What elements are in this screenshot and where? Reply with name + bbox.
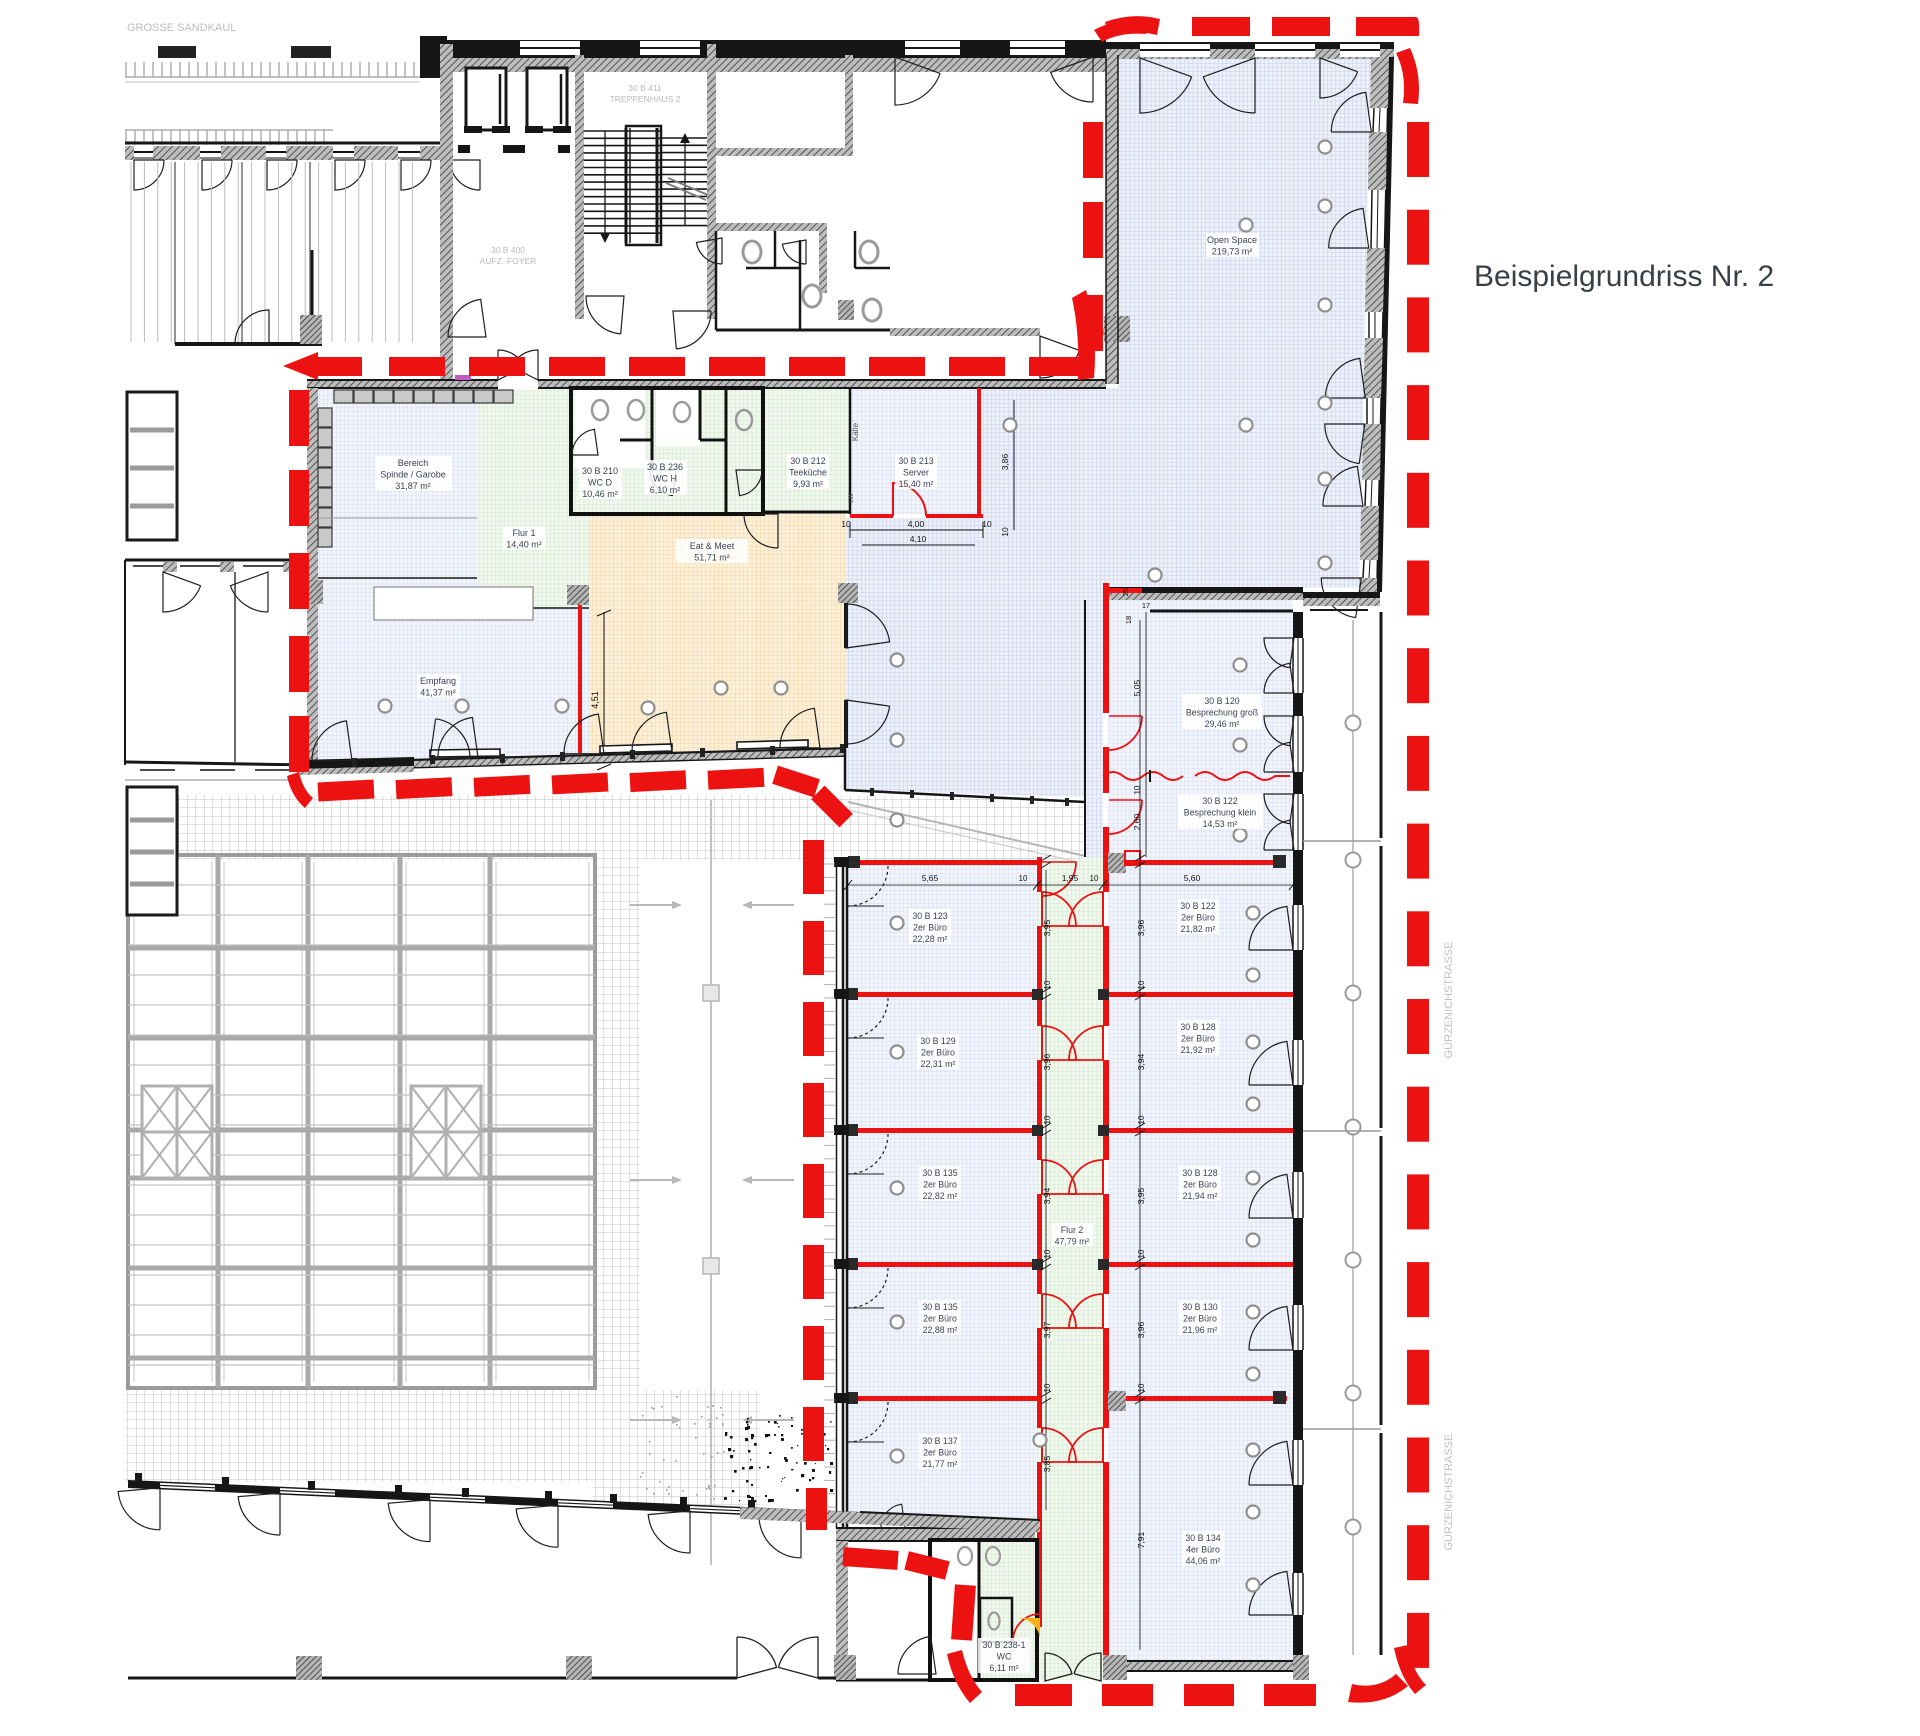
svg-text:3,85: 3,85 — [1042, 1455, 1052, 1472]
svg-text:30 B 1292er Büro22,31 m²: 30 B 1292er Büro22,31 m² — [920, 1036, 955, 1069]
svg-text:10: 10 — [982, 519, 992, 529]
svg-text:Kälte: Kälte — [851, 422, 860, 441]
svg-text:LW: LW — [848, 493, 855, 503]
svg-text:30 B 213Server15,40 m²: 30 B 213Server15,40 m² — [898, 456, 933, 489]
svg-text:GROSSE SANDKAUL: GROSSE SANDKAUL — [127, 22, 236, 34]
svg-text:1,95: 1,95 — [1062, 873, 1079, 883]
svg-text:5,65: 5,65 — [922, 873, 939, 883]
svg-text:30 B 1344er Büro44,06 m²: 30 B 1344er Büro44,06 m² — [1185, 1533, 1220, 1566]
svg-text:7,91: 7,91 — [1136, 1531, 1146, 1548]
svg-text:3,96: 3,96 — [1042, 1053, 1052, 1070]
svg-text:30 B 1302er Büro21,96 m²: 30 B 1302er Büro21,96 m² — [1182, 1302, 1217, 1335]
svg-text:10: 10 — [1090, 874, 1099, 883]
svg-text:Open Space219,73 m²: Open Space219,73 m² — [1207, 235, 1257, 257]
svg-text:5,60: 5,60 — [1184, 873, 1201, 883]
svg-text:30 B 1282er Büro21,94 m²: 30 B 1282er Büro21,94 m² — [1182, 1168, 1217, 1201]
svg-text:Beispielgrundriss Nr. 2: Beispielgrundriss Nr. 2 — [1474, 260, 1774, 293]
svg-text:17: 17 — [1142, 601, 1150, 610]
svg-text:4,10: 4,10 — [910, 534, 927, 544]
svg-text:10: 10 — [1137, 1383, 1146, 1392]
svg-text:30 B 212Teeküche9,93 m²: 30 B 212Teeküche9,93 m² — [789, 456, 827, 489]
svg-text:4,51: 4,51 — [590, 691, 600, 709]
svg-text:Eat & Meet51,71 m²: Eat & Meet51,71 m² — [690, 541, 735, 563]
svg-text:10: 10 — [1137, 1249, 1146, 1258]
svg-text:10: 10 — [1043, 1249, 1052, 1258]
svg-text:3,86: 3,86 — [1000, 453, 1010, 470]
svg-text:30 B 1232er Büro22,28 m²: 30 B 1232er Büro22,28 m² — [912, 911, 947, 944]
svg-text:10: 10 — [1137, 980, 1146, 989]
svg-text:30 B 1352er Büro22,82 m²: 30 B 1352er Büro22,82 m² — [922, 1168, 957, 1201]
svg-text:3,96: 3,96 — [1136, 1321, 1146, 1338]
svg-text:10: 10 — [841, 519, 851, 529]
svg-text:3,95: 3,95 — [1042, 919, 1052, 936]
svg-text:30 B 1372er Büro21,77 m²: 30 B 1372er Büro21,77 m² — [922, 1436, 957, 1469]
svg-text:3,96: 3,96 — [1136, 919, 1146, 936]
svg-text:25: 25 — [1121, 588, 1130, 596]
svg-text:2,60: 2,60 — [1132, 813, 1142, 830]
svg-text:30 B 1222er Büro21,82 m²: 30 B 1222er Büro21,82 m² — [1180, 901, 1215, 934]
svg-text:3,94: 3,94 — [1042, 1187, 1052, 1204]
svg-text:3,95: 3,95 — [1136, 1187, 1146, 1204]
svg-text:30 B 1352er Büro22,88 m²: 30 B 1352er Büro22,88 m² — [922, 1302, 957, 1335]
svg-text:GÜRZENICHSTRASSE: GÜRZENICHSTRASSE — [1443, 1434, 1455, 1551]
svg-text:Empfang41,37 m²: Empfang41,37 m² — [420, 676, 456, 698]
svg-text:10: 10 — [1000, 527, 1010, 537]
svg-text:10: 10 — [1019, 874, 1028, 883]
svg-text:3,97: 3,97 — [1042, 1321, 1052, 1338]
svg-text:5,05: 5,05 — [1132, 679, 1142, 696]
svg-text:10: 10 — [1043, 980, 1052, 989]
svg-text:3,94: 3,94 — [1136, 1053, 1146, 1070]
svg-text:10: 10 — [1137, 1115, 1146, 1124]
svg-text:10: 10 — [1043, 1383, 1052, 1392]
svg-text:4,00: 4,00 — [908, 519, 925, 529]
svg-text:GÜRZENICHSTRASSE: GÜRZENICHSTRASSE — [1443, 942, 1455, 1059]
svg-text:30 B 1282er Büro21,92 m²: 30 B 1282er Büro21,92 m² — [1180, 1022, 1215, 1055]
svg-text:10: 10 — [1043, 1115, 1052, 1124]
svg-text:10: 10 — [1133, 785, 1142, 794]
svg-text:18: 18 — [1124, 616, 1133, 624]
